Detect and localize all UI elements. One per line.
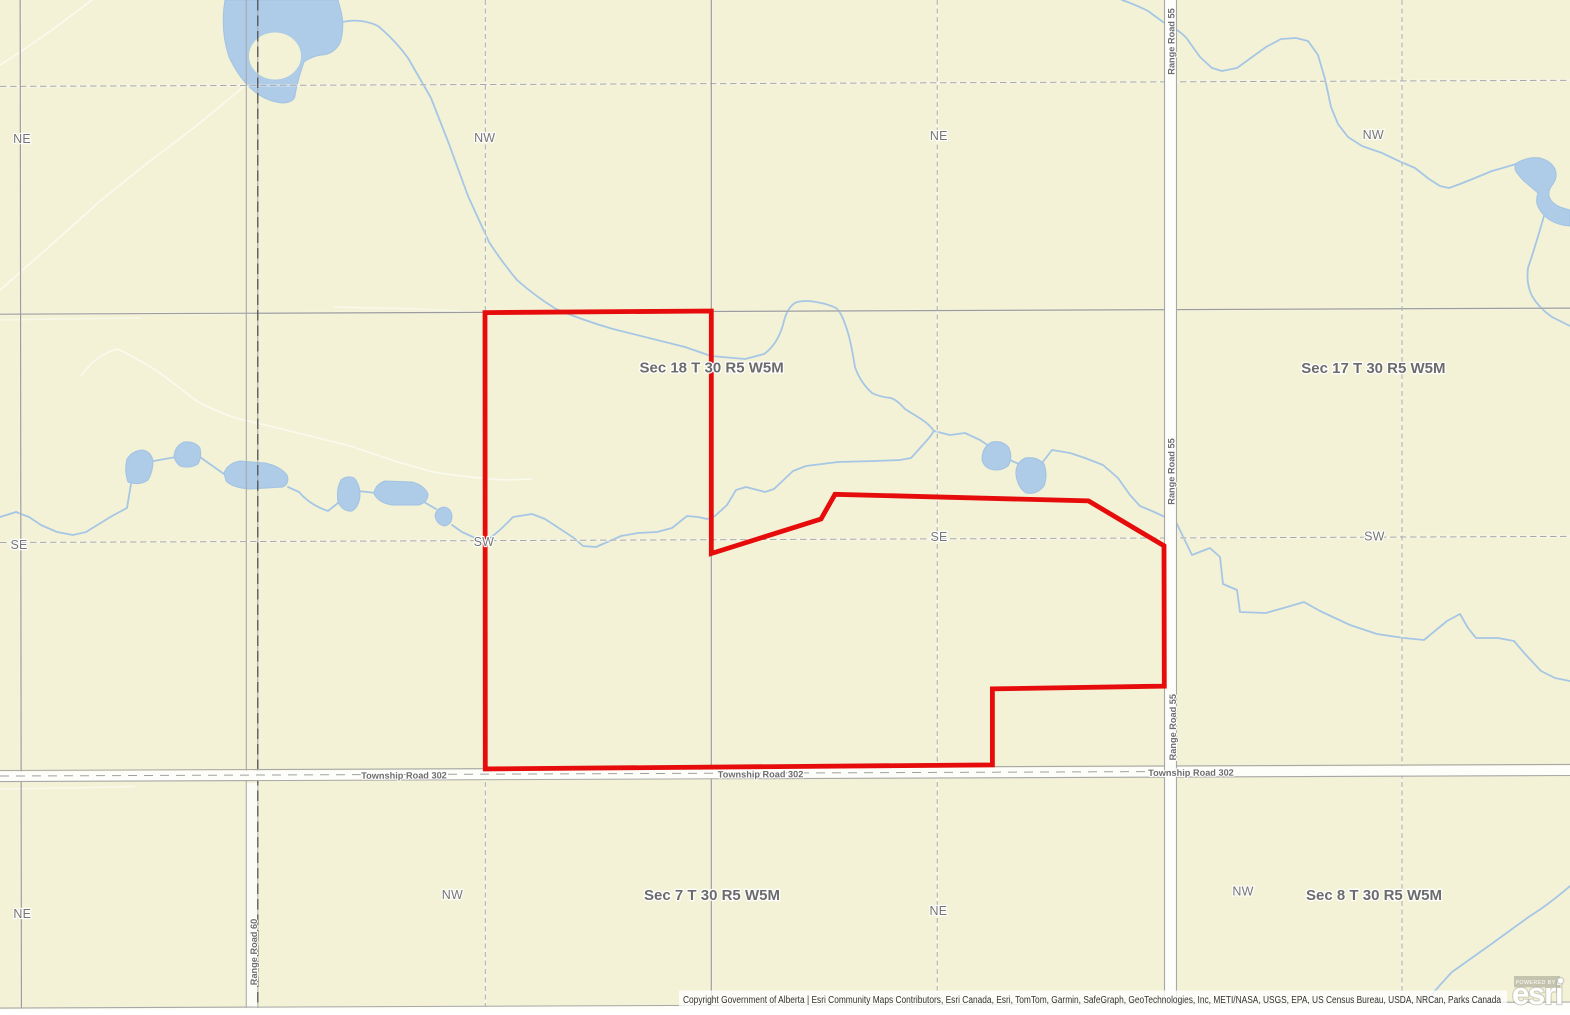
svg-text:NE: NE bbox=[13, 132, 31, 146]
svg-text:Range Road 55: Range Road 55 bbox=[1166, 438, 1176, 504]
svg-text:Township Road 302: Township Road 302 bbox=[361, 770, 447, 780]
svg-text:Range Road 60: Range Road 60 bbox=[249, 919, 259, 985]
svg-text:Copyright Government of Albert: Copyright Government of Alberta | Esri C… bbox=[683, 995, 1501, 1006]
svg-text:NW: NW bbox=[474, 131, 495, 145]
svg-text:Township Road 302: Township Road 302 bbox=[718, 769, 804, 779]
svg-text:NE: NE bbox=[13, 907, 31, 921]
svg-text:SE: SE bbox=[10, 538, 27, 552]
svg-text:Sec 17 T 30 R5 W5M: Sec 17 T 30 R5 W5M bbox=[1301, 360, 1445, 377]
svg-text:NW: NW bbox=[1363, 128, 1384, 142]
svg-text:esri: esri bbox=[1512, 976, 1562, 1010]
svg-text:NE: NE bbox=[930, 129, 948, 143]
svg-text:Sec 8 T 30 R5 W5M: Sec 8 T 30 R5 W5M bbox=[1306, 887, 1442, 904]
svg-text:SW: SW bbox=[1364, 530, 1385, 544]
svg-text:Range Road 55: Range Road 55 bbox=[1168, 694, 1178, 760]
svg-text:NE: NE bbox=[930, 904, 948, 918]
svg-text:Township Road 302: Township Road 302 bbox=[1148, 768, 1234, 778]
svg-text:SW: SW bbox=[474, 535, 495, 549]
svg-text:Range Road 55: Range Road 55 bbox=[1166, 8, 1176, 74]
svg-text:SE: SE bbox=[930, 530, 947, 544]
svg-text:Sec 7 T 30 R5 W5M: Sec 7 T 30 R5 W5M bbox=[644, 887, 780, 904]
svg-text:Sec 18 T 30 R5 W5M: Sec 18 T 30 R5 W5M bbox=[639, 359, 783, 376]
svg-text:NW: NW bbox=[1232, 885, 1253, 899]
svg-text:NW: NW bbox=[442, 888, 463, 902]
